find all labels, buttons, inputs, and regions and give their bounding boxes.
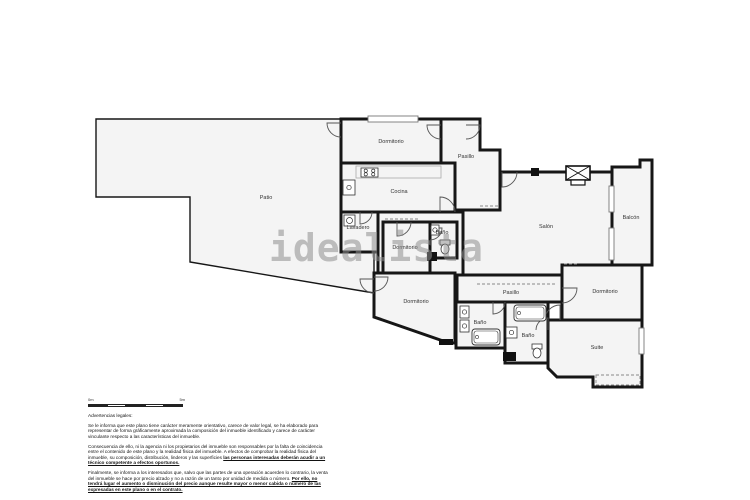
legal-heading: Advertencias legales:: [88, 413, 328, 419]
room-label-cocina: Cocina: [390, 189, 408, 195]
sink-icon: [460, 306, 469, 318]
room-label-dormitorio_top: Dormitorio: [378, 139, 403, 145]
legal-disclaimer: Advertencias legales: Se le informa que …: [88, 413, 328, 497]
scale-segment: [145, 404, 164, 407]
sink-icon: [343, 180, 355, 195]
legal-paragraph-2: Consecuencia de ello, ni la agencia ni l…: [88, 444, 328, 467]
scale-segment: [88, 404, 107, 407]
wall-pillar: [531, 168, 539, 176]
scale-bar: 0m 5m: [88, 402, 183, 408]
bathtub-icon: [514, 305, 546, 321]
floorplan-page: PatioSalónBalcónPasilloDormitorioCocinaL…: [0, 0, 750, 500]
legal-paragraph-1: Se le informa que este plano tiene carác…: [88, 423, 328, 440]
room-label-bano_left: Baño: [474, 320, 487, 326]
window-x-symbol: [571, 180, 585, 185]
legal-paragraph-3: Finalmente, se informa a los interesados…: [88, 470, 328, 493]
room-label-pasillo_bottom: Pasillo: [503, 290, 519, 296]
bathtub-icon: [472, 329, 500, 345]
scale-segment: [126, 404, 145, 407]
sink-icon: [506, 327, 517, 338]
room-label-pasillo_top: Pasillo: [458, 154, 474, 160]
room-suite: [548, 320, 642, 387]
wall-pillar: [439, 339, 453, 345]
scale-right-label: 5m: [179, 397, 185, 402]
room-label-dormitorio_right: Dormitorio: [592, 289, 617, 295]
room-label-balcon: Balcón: [623, 215, 640, 221]
room-pasillo_bottom: [457, 275, 562, 302]
scale-left-label: 0m: [88, 397, 94, 402]
wall-pillar: [503, 352, 516, 361]
window: [639, 328, 644, 354]
window: [609, 186, 614, 212]
room-cocina: [341, 163, 455, 212]
room-label-dormitorio_bl: Dormitorio: [403, 299, 428, 305]
room-label-bano_right: Baño: [522, 333, 535, 339]
room-label-salon: Salón: [539, 224, 553, 230]
room-label-patio: Patio: [260, 195, 273, 201]
toilet-icon: [533, 348, 541, 358]
stove-icon: [361, 168, 378, 177]
window: [609, 228, 614, 260]
scale-segment: [107, 404, 126, 407]
room-balcon: [612, 160, 652, 265]
idealista-watermark: idealista: [269, 226, 484, 270]
scale-segment: [164, 404, 183, 407]
window: [368, 116, 418, 122]
sink-icon: [460, 320, 469, 332]
room-label-suite: Suite: [591, 345, 604, 351]
